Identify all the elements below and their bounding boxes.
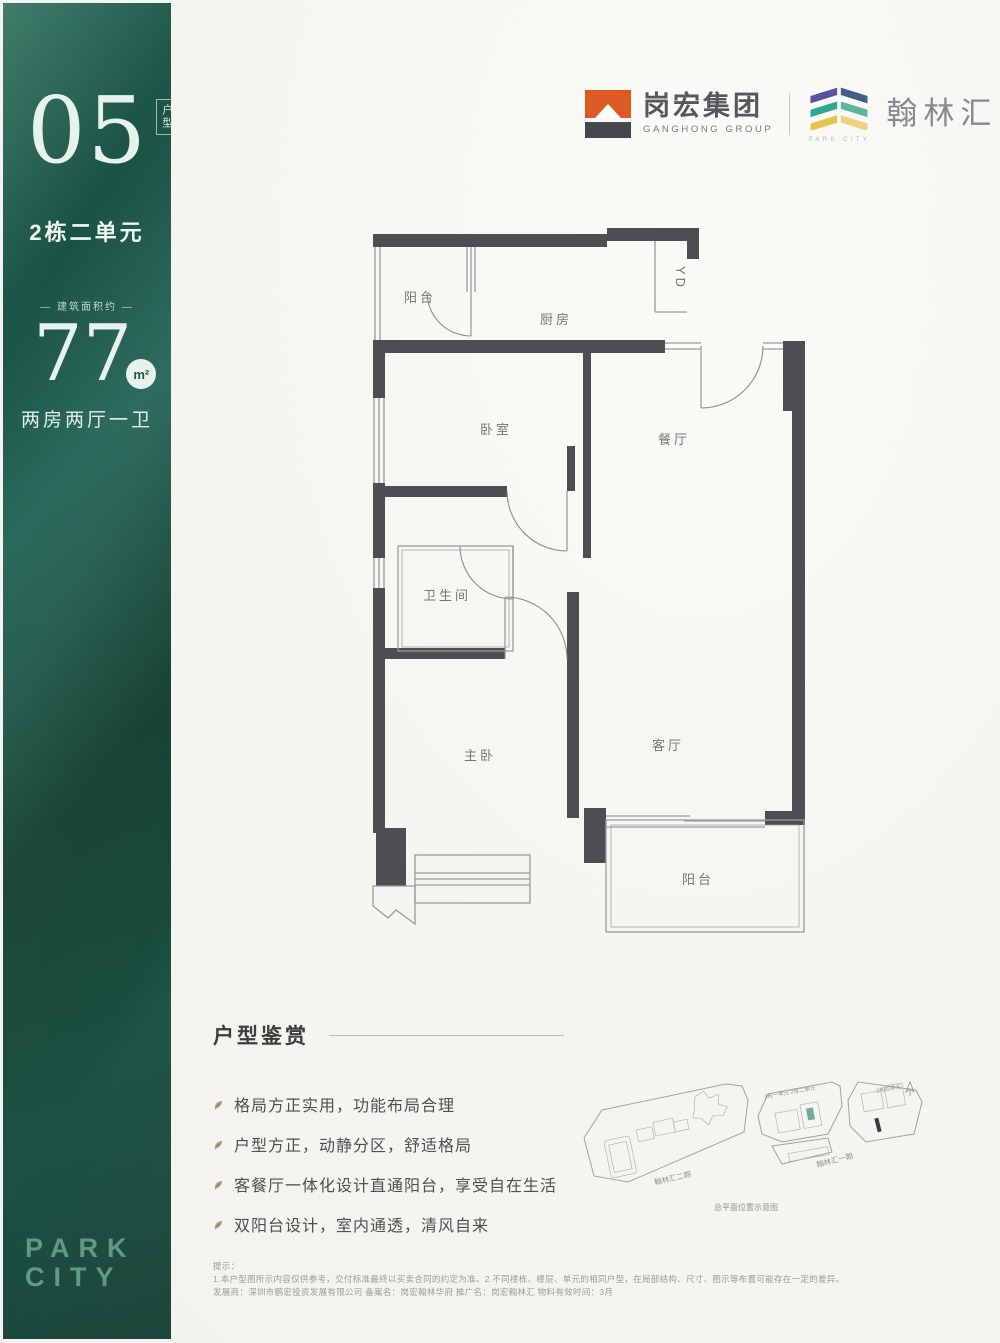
feature-list: 格局方正实用，功能布局合理 户型方正，动静分区，舒适格局 客餐厅一体化设计直通阳… <box>213 1092 633 1236</box>
features-section: 户型鉴赏 格局方正实用，功能布局合理 户型方正，动静分区，舒适格局 客餐厅一体化… <box>213 1020 633 1252</box>
ganghong-name-cn: 岗宏集团 <box>643 93 773 120</box>
sitemap-caption: 总平面位置示意图 <box>714 1202 778 1212</box>
feature-item: 户型方正，动静分区，舒适格局 <box>213 1132 633 1156</box>
features-title-row: 户型鉴赏 <box>213 1020 633 1050</box>
master-bedroom-label: 主卧 <box>464 748 496 763</box>
hanlin-logo-icon: PARK CITY <box>806 84 872 143</box>
logo-divider <box>789 93 790 135</box>
unit-label-left: 2栋一单元 2栋二单元 <box>764 1084 817 1101</box>
brand-line-1: PARK <box>25 1234 136 1262</box>
leaf-bullet-icon <box>213 1139 224 1150</box>
hanlin-name-cn: 翰林汇 <box>886 98 997 129</box>
feature-item: 格局方正实用，功能布局合理 <box>213 1092 633 1116</box>
kitchen-label: 厨房 <box>540 312 572 327</box>
phase2-label: 翰林汇二期 <box>653 1169 692 1187</box>
feature-text: 双阳台设计，室内通透，清风自来 <box>234 1212 489 1236</box>
ganghong-logo-icon <box>585 90 631 138</box>
unit-tag-box: 户型 <box>156 99 177 135</box>
building-label: 2栋二单元 <box>3 215 171 247</box>
room-config-label: 两房两厅一卫 <box>3 405 171 432</box>
disclaimer: 提示： 1.本户型图所示内容仅供参考，交付标准最终以买卖合同的约定为准。2.不同… <box>213 1260 863 1300</box>
disclaimer-line-1: 1.本户型图所示内容仅供参考，交付标准最终以买卖合同的约定为准。2.不同楼栋、楼… <box>213 1273 863 1286</box>
leaf-bullet-icon <box>213 1179 224 1190</box>
feature-item: 双阳台设计，室内通透，清风自来 <box>213 1212 633 1236</box>
yd-label: YD <box>673 266 688 290</box>
unit-row: 05 户型 <box>27 85 177 177</box>
area-unit-badge: m² <box>126 359 156 389</box>
site-plan-map: 翰林汇二期 2栋一单元 2栋二单元 2栋四单元 翰林汇一期 总平面位置示意图 <box>576 1076 928 1218</box>
highlighted-unit <box>806 1107 815 1120</box>
ganghong-name-en: GANGHONG GROUP <box>643 124 773 135</box>
area-value: 77 <box>33 315 132 393</box>
ganghong-logo-text: 岗宏集团 GANGHONG GROUP <box>643 93 773 135</box>
balcony-top-label: 阳台 <box>404 290 436 305</box>
balcony-bottom-label: 阳台 <box>682 872 714 887</box>
sidebar: 05 户型 2栋二单元 — 建筑面积约 — 77 m² 两房两厅一卫 PARK … <box>3 3 171 1339</box>
hanlin-name-en: PARK CITY <box>806 137 872 143</box>
bathroom-label: 卫生间 <box>423 588 471 603</box>
leaf-bullet-icon <box>213 1099 224 1110</box>
park-city-logotype: PARK CITY <box>25 1234 136 1291</box>
area-row: 77 m² <box>33 315 156 393</box>
feature-text: 户型方正，动静分区，舒适格局 <box>234 1132 472 1156</box>
dining-label: 餐厅 <box>658 432 690 447</box>
phase2-cluster: 翰林汇二期 <box>584 1084 748 1187</box>
feature-text: 客餐厅一体化设计直通阳台，享受自在生活 <box>234 1172 557 1196</box>
header-logos: 岗宏集团 GANGHONG GROUP PARK CITY 翰林汇 <box>585 84 997 143</box>
poster-page: 05 户型 2栋二单元 — 建筑面积约 — 77 m² 两房两厅一卫 PARK … <box>0 0 1000 1343</box>
disclaimer-line-2: 发展商：深圳市鹏宏投资发展有限公司 备案名：岗宏翰林华府 推广名：岗宏翰林汇 物… <box>213 1286 863 1299</box>
open-book-stripes-icon <box>806 84 872 130</box>
brand-line-2: CITY <box>25 1263 136 1291</box>
feature-item: 客餐厅一体化设计直通阳台，享受自在生活 <box>213 1172 633 1196</box>
bedroom-label: 卧室 <box>480 422 512 437</box>
unit-label-right: 2栋四单元 <box>876 1082 903 1094</box>
disclaimer-intro: 提示： <box>213 1260 863 1273</box>
walls <box>373 228 805 886</box>
phase1-label: 翰林汇一期 <box>815 1150 854 1169</box>
unit-number: 05 <box>27 85 148 177</box>
feature-text: 格局方正实用，功能布局合理 <box>234 1092 455 1116</box>
features-title: 户型鉴赏 <box>213 1020 309 1050</box>
living-room-label: 客厅 <box>652 738 684 753</box>
title-rule <box>329 1035 564 1036</box>
floorplan-drawing: 阳台 厨房 YD 卧室 餐厅 卫生间 主卧 客厅 阳台 <box>368 228 820 952</box>
leaf-bullet-icon <box>213 1219 224 1230</box>
room-labels: 阳台 厨房 YD 卧室 餐厅 卫生间 主卧 客厅 阳台 <box>404 266 714 887</box>
phase1-cluster: 2栋一单元 2栋二单元 2栋四单元 翰林汇一期 <box>758 1082 922 1169</box>
